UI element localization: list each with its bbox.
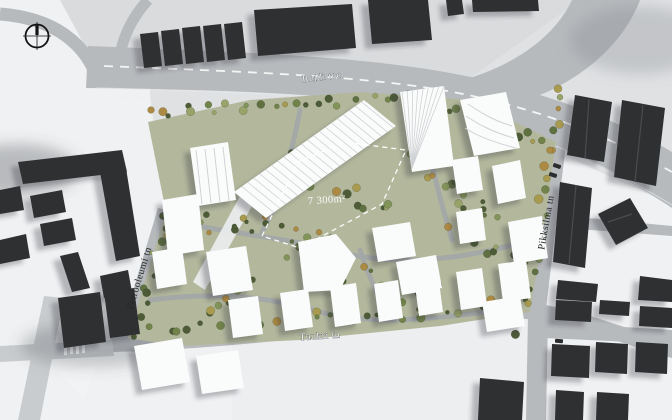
site-plan-canvas: 7 300m² Reidi tee Petrooleumi tn Tuukri … bbox=[0, 0, 672, 420]
site-plan-render: 7 300m² Reidi tee Petrooleumi tn Tuukri … bbox=[0, 0, 672, 420]
